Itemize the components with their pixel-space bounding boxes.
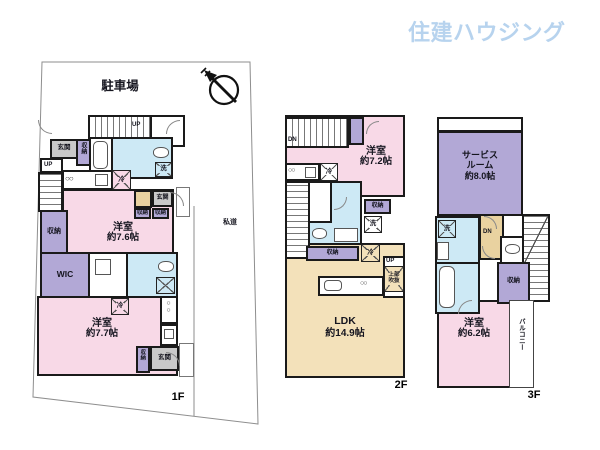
toilet-icon (158, 261, 174, 272)
fridge-xbox-2f-top: 冷 (320, 163, 338, 181)
sink-icon (305, 167, 316, 178)
stairs-1f-left (38, 172, 63, 212)
label-bedroom-3f: 洋室 約6.2帖 (444, 318, 504, 340)
fridge-xbox-1f-low: 冷 (111, 298, 129, 315)
laundry-xbox-2f: 洗 (364, 216, 382, 233)
stairs-winder-line (524, 216, 548, 264)
label-bedroom-2f: 洋室 約7.2帖 (348, 146, 404, 168)
floor-label-2f: 2F (388, 379, 414, 392)
label-ldk-2f: LDK 約14.9帖 (315, 316, 375, 339)
parking-label: 駐車場 (84, 79, 156, 93)
porch-1f-bottom (179, 343, 194, 377)
fridge-xbox-2f-mid: 冷 (361, 244, 380, 262)
label-balcony-3f: バルコニー (517, 318, 524, 351)
vanity-icon (437, 242, 449, 260)
fridge-xbox-1f-top: 冷 (112, 170, 131, 190)
label-closet-2f-right: 収納 (364, 203, 391, 210)
label-genkan-bottom: 玄関 (151, 354, 178, 361)
label-wic: WIC (52, 270, 78, 280)
label-closet-mid-b: 収納 (152, 210, 169, 216)
floorplan-image: 住建ハウジング 駐車場 洗 ○○ 冷 (0, 0, 600, 450)
label-bedroom2-1f: 洋室 約7.7帖 (70, 318, 134, 340)
toilet-icon (505, 244, 520, 254)
bathtub-icon (439, 266, 455, 308)
bathtub-icon (93, 141, 108, 169)
label-closet-top: 収納 (79, 142, 86, 154)
laundry-xbox-1f: 洗 (155, 162, 172, 177)
label-dn-3f: DN (483, 229, 492, 236)
label-up-left: UP (44, 162, 52, 169)
label-closet-left: 収納 (45, 228, 63, 236)
floor-label-3f: 3F (520, 389, 548, 402)
sink-icon (95, 174, 108, 186)
stove-icon: ○○ (164, 300, 172, 314)
sink-icon (324, 280, 342, 291)
label-dn-2f: DN (288, 137, 297, 144)
toilet-icon (312, 228, 327, 239)
label-closet-3f: 収納 (500, 277, 527, 284)
laundry-xbox-3f: 洗 (438, 220, 456, 238)
stove-icon: ○○ (65, 174, 73, 183)
label-genkan-mid: 玄関 (152, 195, 173, 202)
label-up-top: UP (132, 122, 140, 129)
label-genkan-top: 玄関 (52, 144, 76, 151)
vanity-icon (334, 228, 358, 242)
void-xbox-2f: 上部吹抜 (384, 266, 404, 292)
roof-box-3f (437, 117, 523, 132)
compass-icon (198, 63, 246, 111)
toilet-icon (153, 147, 169, 158)
closet-1f-tan (134, 190, 152, 208)
washer-xbox-1f (156, 277, 175, 294)
stove-icon: ○○ (288, 167, 294, 175)
label-up-2f: UP (386, 258, 394, 265)
shower-room-2f (308, 181, 332, 223)
sink-icon (164, 329, 174, 339)
shower-pan-icon (95, 259, 111, 275)
label-bedroom1-1f: 洋室 約7.6帖 (95, 222, 151, 244)
label-closet-mid-a: 収納 (134, 210, 151, 216)
label-closet-2f-mid: 収納 (306, 250, 359, 257)
label-service-room-3f: サービス ルーム 約8.0帖 (445, 150, 515, 181)
closet-2f-top (349, 117, 364, 145)
road-label: 私道 (219, 219, 241, 227)
label-closet-bottom: 収納 (139, 349, 145, 360)
stove-icon: ○○ (360, 280, 366, 288)
floor-label-1f: 1F (164, 391, 192, 404)
